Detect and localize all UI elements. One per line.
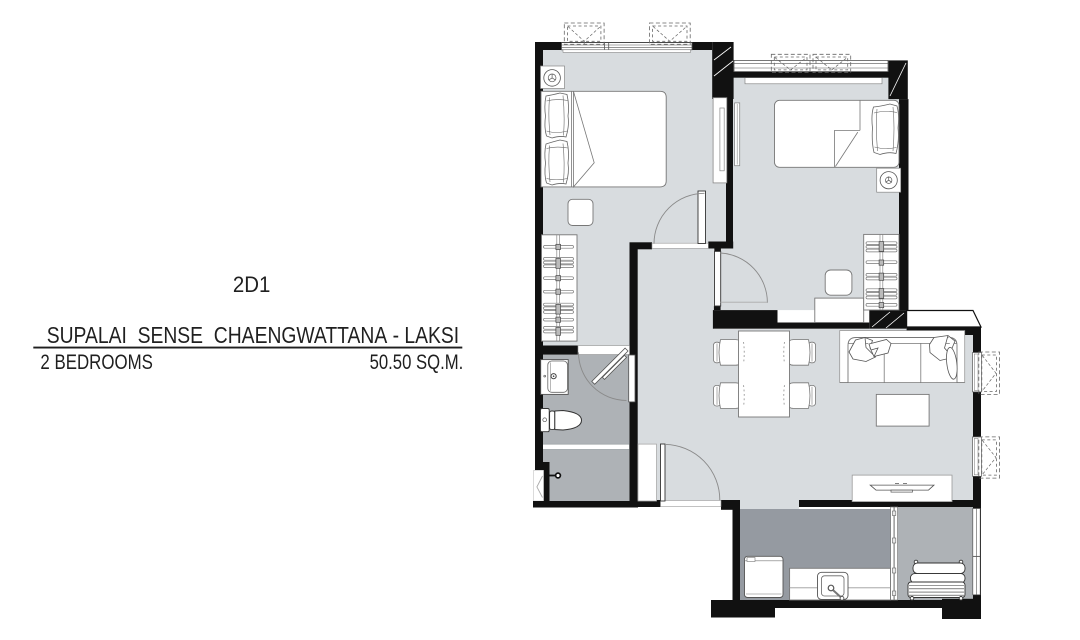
svg-text:2 BEDROOMS: 2 BEDROOMS bbox=[40, 351, 152, 374]
svg-text:2D1: 2D1 bbox=[233, 272, 271, 297]
svg-text:SUPALAI SENSE CHAENGWATTANA: SUPALAI SENSE CHAENGWATTANA - LAKSI bbox=[47, 322, 460, 348]
svg-text:50.50 SQ.M.: 50.50 SQ.M. bbox=[370, 351, 464, 374]
